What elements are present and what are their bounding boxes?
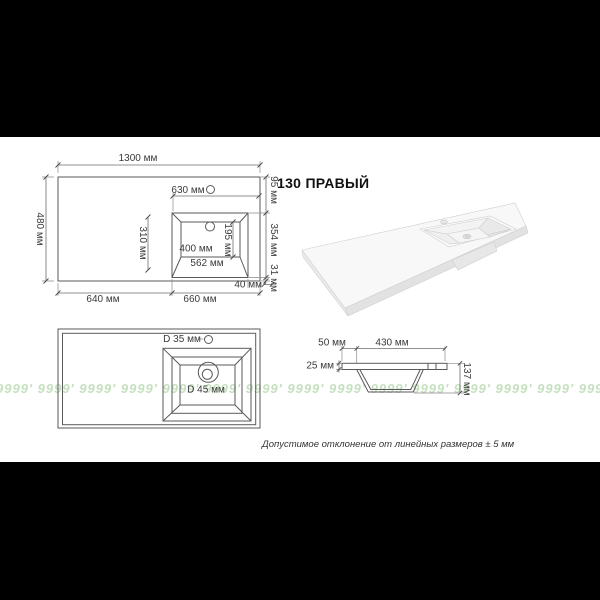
holes-view: D 35 мм D 45 мм <box>58 329 260 428</box>
tolerance-note: Допустимое отклонение от линейных размер… <box>262 439 486 450</box>
dim-board-thickness: 25 мм <box>306 361 334 372</box>
render-drain-hole-inner <box>465 235 469 237</box>
page: 9999' 9999' 9999' 9999' 9999' 9999' 9999… <box>0 0 600 600</box>
bowl-inner-wall <box>360 370 420 390</box>
drain-hole-plan <box>206 222 215 231</box>
dim-basin-top-width: 562 мм <box>190 258 223 269</box>
dimension-lines <box>46 165 272 293</box>
bowl-outer-wall <box>357 370 424 393</box>
dim-drain-to-edge: 195 мм <box>222 223 233 256</box>
dim-basin-side-gap: 40 мм <box>234 280 262 291</box>
drain-inner-circle <box>202 369 212 379</box>
dim-basin-bottom-width: 400 мм <box>179 244 212 255</box>
letterbox-top <box>0 0 600 137</box>
product-title: 130 ПРАВЫЙ <box>277 175 369 191</box>
board-section-joints <box>428 363 436 369</box>
dim-basin-to-bottom-edge: 31 мм <box>268 264 279 292</box>
render-faucet-hole <box>441 220 448 224</box>
dim-overall-depth: 480 мм <box>34 212 45 245</box>
dim-overall-width: 1300 мм <box>119 153 158 164</box>
dim-basin-span: 354 мм <box>268 223 279 256</box>
faucet-hole-circle <box>205 336 213 344</box>
extension-lines <box>42 161 270 296</box>
board-section <box>342 363 447 369</box>
section-view: 50 мм 430 мм 25 мм 137 мм <box>306 338 472 396</box>
countertop-inner-line <box>63 333 256 424</box>
product-render <box>302 203 528 316</box>
letterbox-bottom <box>0 462 600 600</box>
dim-bowl-depth: 137 мм <box>461 362 472 395</box>
dim-drain-hole: D 45 мм <box>187 385 225 396</box>
dim-bowl-width: 430 мм <box>375 338 408 349</box>
dim-basin-to-right-edge: 630 мм <box>171 185 204 196</box>
section-dimension-ticks <box>337 346 462 395</box>
faucet-hole-plan <box>207 186 215 194</box>
dim-left-section: 640 мм <box>86 294 119 305</box>
top-view: 1300 мм 480 мм 630 мм 95 мм 310 мм 195 м… <box>34 153 279 305</box>
drawing-sheet: 9999' 9999' 9999' 9999' 9999' 9999' 9999… <box>0 137 600 462</box>
dim-right-section: 660 мм <box>183 294 216 305</box>
dim-faucet-hole: D 35 мм <box>163 334 201 345</box>
dim-rim-offset: 50 мм <box>318 338 346 349</box>
dim-basin-inner-depth: 310 мм <box>137 226 148 259</box>
